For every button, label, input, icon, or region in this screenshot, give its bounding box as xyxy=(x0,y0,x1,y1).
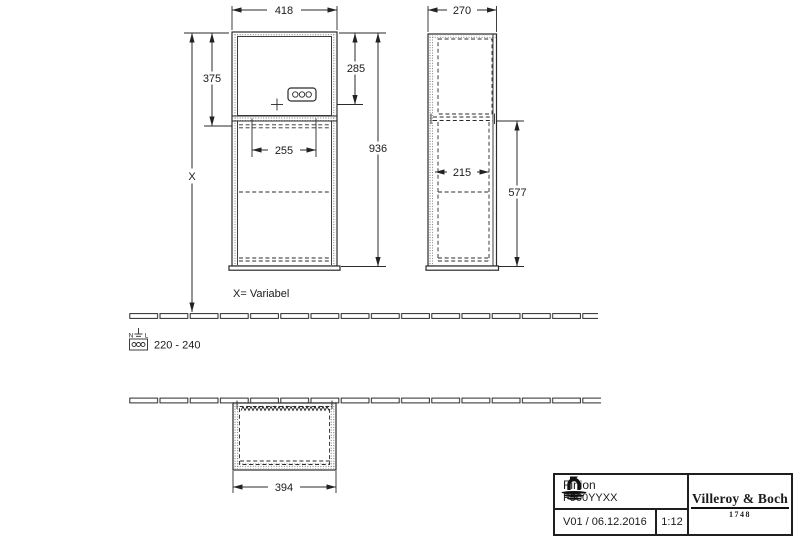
dim-front-socket-height: 285 xyxy=(342,33,370,105)
version-date: V01 / 06.12.2016 xyxy=(555,510,655,534)
front-divider xyxy=(232,116,337,121)
earth-icon xyxy=(135,328,143,336)
variable-note: X= Variabel xyxy=(233,288,289,300)
plan-view: 394 xyxy=(233,401,336,495)
front-upper-module-inner xyxy=(238,37,332,116)
revision-row: V01 / 06.12.2016 1:12 xyxy=(555,510,687,534)
svg-text:285: 285 xyxy=(347,63,365,75)
svg-text:X: X xyxy=(188,171,196,183)
drawing-svg: 418 X 375 285 936 xyxy=(0,0,795,537)
technical-drawing-page: 418 X 375 285 936 xyxy=(0,0,795,537)
wall-hatch-line xyxy=(129,398,601,404)
brand-arch-icon xyxy=(555,475,593,502)
svg-text:418: 418 xyxy=(275,5,293,17)
front-view: 418 X 375 285 936 xyxy=(184,4,392,313)
svg-text:270: 270 xyxy=(453,5,471,17)
voltage-range: 220 - 240 xyxy=(154,340,200,352)
dim-front-upper-height: 375 xyxy=(198,33,226,126)
dim-side-lower-height: 577 xyxy=(497,121,532,267)
svg-text:255: 255 xyxy=(275,145,293,157)
brand-logo: Villeroy & Boch 1748 xyxy=(689,475,791,534)
dim-plan-width: 394 xyxy=(233,481,336,495)
power-connection-symbol: N L 220 - 240 xyxy=(129,328,201,352)
plan-cabinet-outline xyxy=(233,403,336,470)
dim-side-depth: 270 xyxy=(428,4,497,18)
svg-text:215: 215 xyxy=(453,167,471,179)
dim-front-width: 418 xyxy=(232,4,337,18)
title-block: Finion F500YYXX V01 / 06.12.2016 1:12 Vi… xyxy=(553,473,793,536)
side-view: 270 215 577 xyxy=(426,4,532,271)
svg-text:375: 375 xyxy=(203,73,221,85)
drawing-scale: 1:12 xyxy=(655,510,687,534)
front-base-plate xyxy=(229,266,340,270)
socket-l-label: L xyxy=(145,333,149,340)
side-base-plate xyxy=(426,266,499,270)
svg-text:394: 394 xyxy=(275,482,293,494)
floor-hatch-line xyxy=(129,313,598,319)
dim-front-variable-height: X xyxy=(185,33,200,312)
svg-text:577: 577 xyxy=(508,187,526,199)
brand-name: Villeroy & Boch xyxy=(691,491,789,509)
socket-n-label: N xyxy=(129,333,134,340)
brand-year: 1748 xyxy=(729,510,751,519)
svg-text:936: 936 xyxy=(369,143,387,155)
